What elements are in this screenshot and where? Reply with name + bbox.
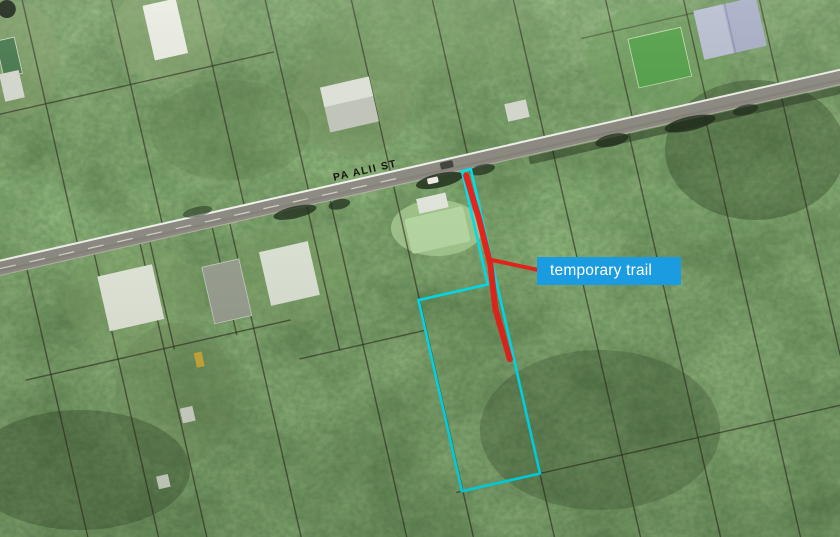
callout-label: temporary trail: [550, 263, 652, 279]
satellite-imagery: PA ALII ST: [0, 0, 840, 537]
temporary-trail-callout: temporary trail: [537, 257, 681, 285]
aerial-map: PA ALII ST temporary trail: [0, 0, 840, 537]
lighting-overlay: [0, 0, 840, 537]
